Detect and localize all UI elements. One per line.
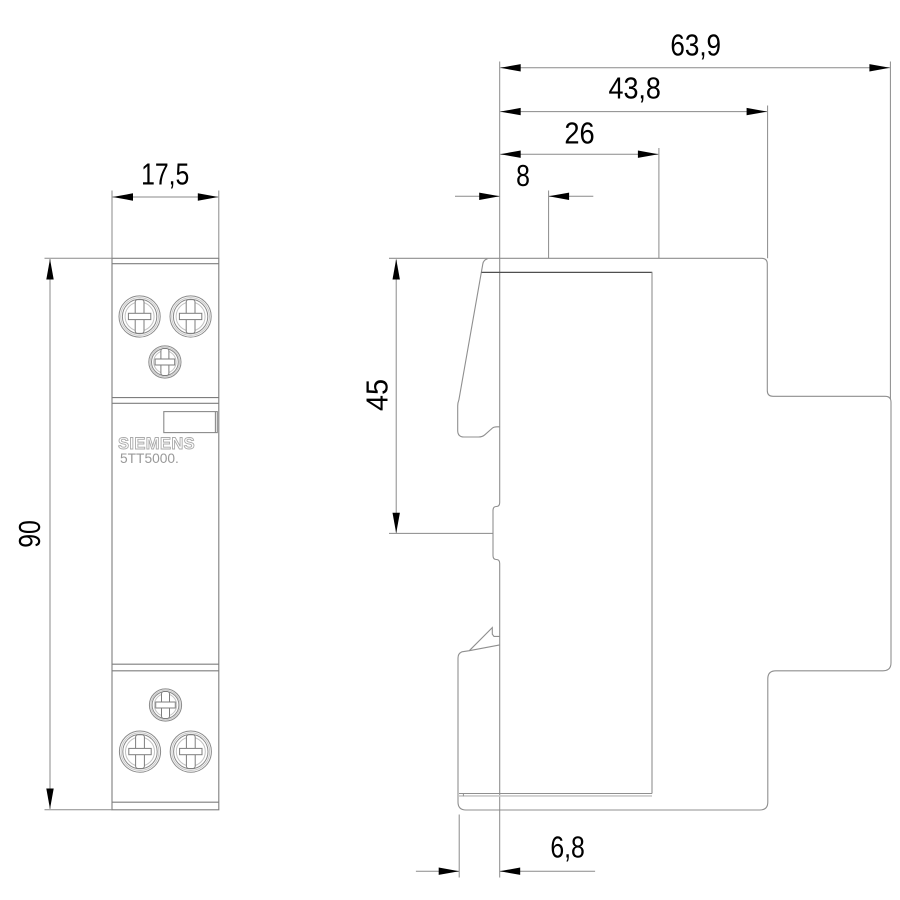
svg-text:90: 90	[12, 520, 46, 548]
svg-text:8: 8	[516, 158, 530, 192]
svg-text:6,8: 6,8	[550, 830, 584, 864]
svg-text:43,8: 43,8	[608, 72, 660, 106]
svg-text:5TT5000.: 5TT5000.	[120, 450, 179, 466]
svg-text:45: 45	[360, 379, 394, 411]
svg-text:26: 26	[564, 117, 594, 151]
svg-text:63,9: 63,9	[670, 28, 721, 63]
svg-text:17,5: 17,5	[141, 157, 189, 191]
